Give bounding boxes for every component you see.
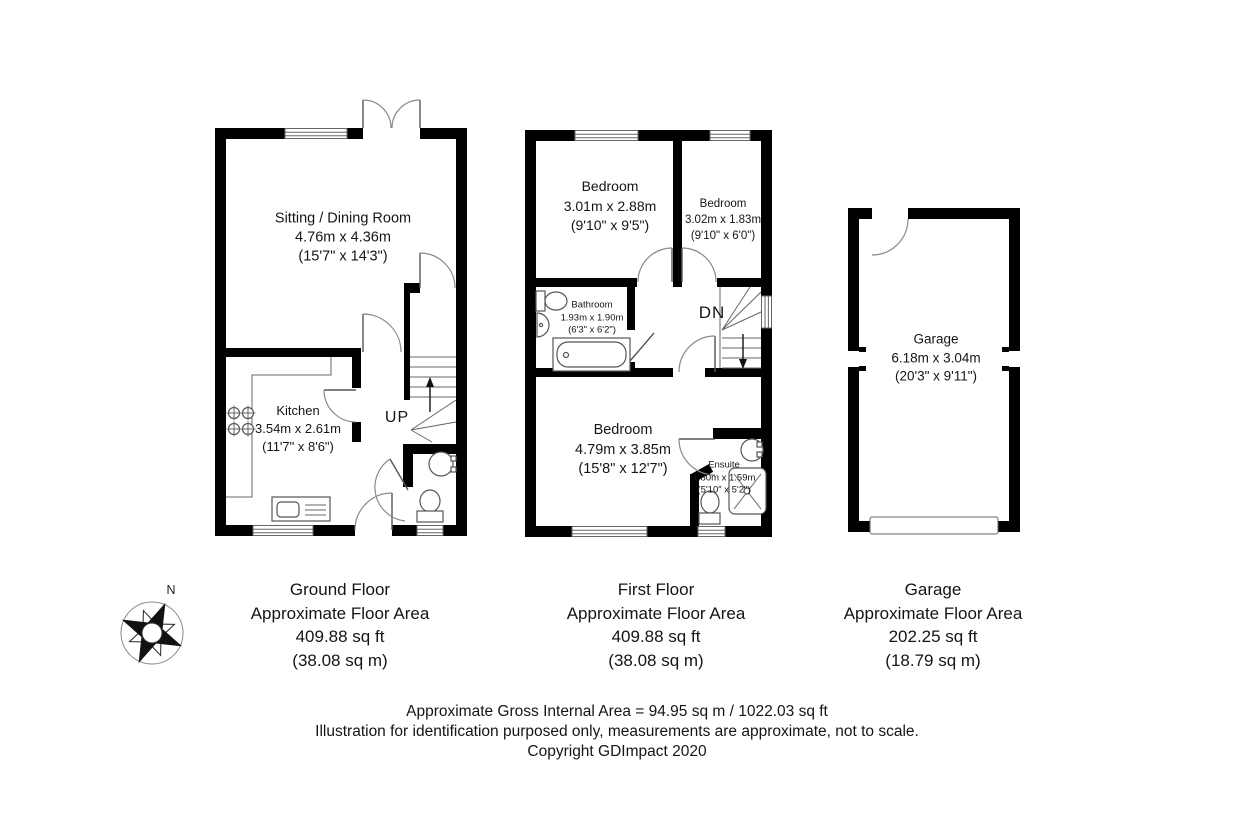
stairs-up-label: UP bbox=[385, 409, 409, 427]
room-size-metric: 6.18m x 3.04m bbox=[891, 349, 980, 368]
room-name: Garage bbox=[891, 330, 980, 349]
room-size-imperial: (15'8" x 12'7") bbox=[575, 460, 671, 480]
room-size-imperial: (6'3" x 6'2") bbox=[561, 324, 624, 337]
caption-line: (18.79 sq m) bbox=[844, 649, 1023, 673]
kitchen-sink bbox=[272, 497, 330, 521]
caption-line: 202.25 sq ft bbox=[844, 625, 1023, 649]
room-size-metric: 3.02m x 1.83m bbox=[685, 212, 761, 228]
garage-door bbox=[870, 517, 998, 534]
copyright-line: Copyright GDImpact 2020 bbox=[315, 742, 919, 762]
ensuite-basin bbox=[741, 439, 763, 461]
room-size-imperial: (20'3" x 9'11") bbox=[891, 367, 980, 386]
garage-caption: Garage Approximate Floor Area 202.25 sq … bbox=[844, 578, 1023, 672]
ensuite-label: Ensuite 1.80m x 1.59m (5'10" x 5'2") bbox=[693, 459, 756, 497]
window bbox=[575, 131, 638, 141]
caption-title: Garage bbox=[844, 578, 1023, 602]
ground-floor-caption: Ground Floor Approximate Floor Area 409.… bbox=[251, 578, 430, 672]
room-name: Bathroom bbox=[561, 299, 624, 312]
room-size-metric: 3.54m x 2.61m bbox=[255, 420, 341, 438]
caption-title: Ground Floor bbox=[251, 578, 430, 602]
bedroom3-label: Bedroom 4.79m x 3.85m (15'8" x 12'7") bbox=[575, 421, 671, 480]
room-name: Bedroom bbox=[564, 177, 657, 197]
room-size-imperial: (9'10" x 6'0") bbox=[685, 228, 761, 244]
caption-line: 409.88 sq ft bbox=[567, 625, 746, 649]
room-name: Bedroom bbox=[685, 196, 761, 212]
room-name: Sitting / Dining Room bbox=[275, 210, 411, 229]
room-name: Kitchen bbox=[255, 402, 341, 420]
sitting-room-label: Sitting / Dining Room 4.76m x 4.36m (15'… bbox=[275, 210, 411, 267]
compass-rose bbox=[107, 588, 197, 678]
caption-line: (38.08 sq m) bbox=[251, 649, 430, 673]
room-size-metric: 1.93m x 1.90m bbox=[561, 312, 624, 325]
window bbox=[253, 526, 313, 536]
caption-line: Approximate Floor Area bbox=[844, 602, 1023, 626]
window bbox=[762, 296, 772, 328]
footer-disclaimer: Approximate Gross Internal Area = 94.95 … bbox=[315, 702, 919, 762]
bathtub bbox=[553, 338, 630, 371]
compass-north-label: N bbox=[166, 583, 175, 597]
room-size-imperial: (9'10" x 9'5") bbox=[564, 216, 657, 236]
room-size-imperial: (11'7" x 8'6") bbox=[255, 438, 341, 456]
bedroom2-label: Bedroom 3.02m x 1.83m (9'10" x 6'0") bbox=[685, 196, 761, 244]
room-size-metric: 1.80m x 1.59m bbox=[693, 472, 756, 485]
caption-title: First Floor bbox=[567, 578, 746, 602]
caption-line: 409.88 sq ft bbox=[251, 625, 430, 649]
caption-line: (38.08 sq m) bbox=[567, 649, 746, 673]
window bbox=[698, 527, 725, 537]
bedroom1-label: Bedroom 3.01m x 2.88m (9'10" x 9'5") bbox=[564, 177, 657, 236]
floorplan-canvas: Sitting / Dining Room 4.76m x 4.36m (15'… bbox=[0, 0, 1250, 833]
caption-line: Approximate Floor Area bbox=[567, 602, 746, 626]
french-doors bbox=[363, 100, 420, 128]
room-size-metric: 3.01m x 2.88m bbox=[564, 196, 657, 216]
gross-area-line: Approximate Gross Internal Area = 94.95 … bbox=[315, 702, 919, 722]
room-size-imperial: (5'10" x 5'2") bbox=[693, 484, 756, 497]
room-size-metric: 4.76m x 4.36m bbox=[275, 229, 411, 248]
window bbox=[710, 131, 750, 141]
window bbox=[417, 526, 443, 536]
ground-floor-plan bbox=[215, 100, 467, 536]
room-name: Ensuite bbox=[693, 459, 756, 472]
stairs-down-label: DN bbox=[699, 303, 726, 323]
wc-basin bbox=[429, 452, 456, 476]
bathroom-label: Bathroom 1.93m x 1.90m (6'3" x 6'2") bbox=[561, 299, 624, 337]
first-floor-caption: First Floor Approximate Floor Area 409.8… bbox=[567, 578, 746, 672]
window bbox=[285, 129, 347, 139]
garage-room-label: Garage 6.18m x 3.04m (20'3" x 9'11") bbox=[891, 330, 980, 386]
ground-floor-walls bbox=[215, 128, 467, 536]
kitchen-label: Kitchen 3.54m x 2.61m (11'7" x 8'6") bbox=[255, 402, 341, 456]
caption-line: Approximate Floor Area bbox=[251, 602, 430, 626]
room-name: Bedroom bbox=[575, 421, 671, 441]
room-size-imperial: (15'7" x 14'3") bbox=[275, 248, 411, 267]
room-size-metric: 4.79m x 3.85m bbox=[575, 440, 671, 460]
window bbox=[572, 527, 647, 537]
disclaimer-line: Illustration for identification purposed… bbox=[315, 722, 919, 742]
